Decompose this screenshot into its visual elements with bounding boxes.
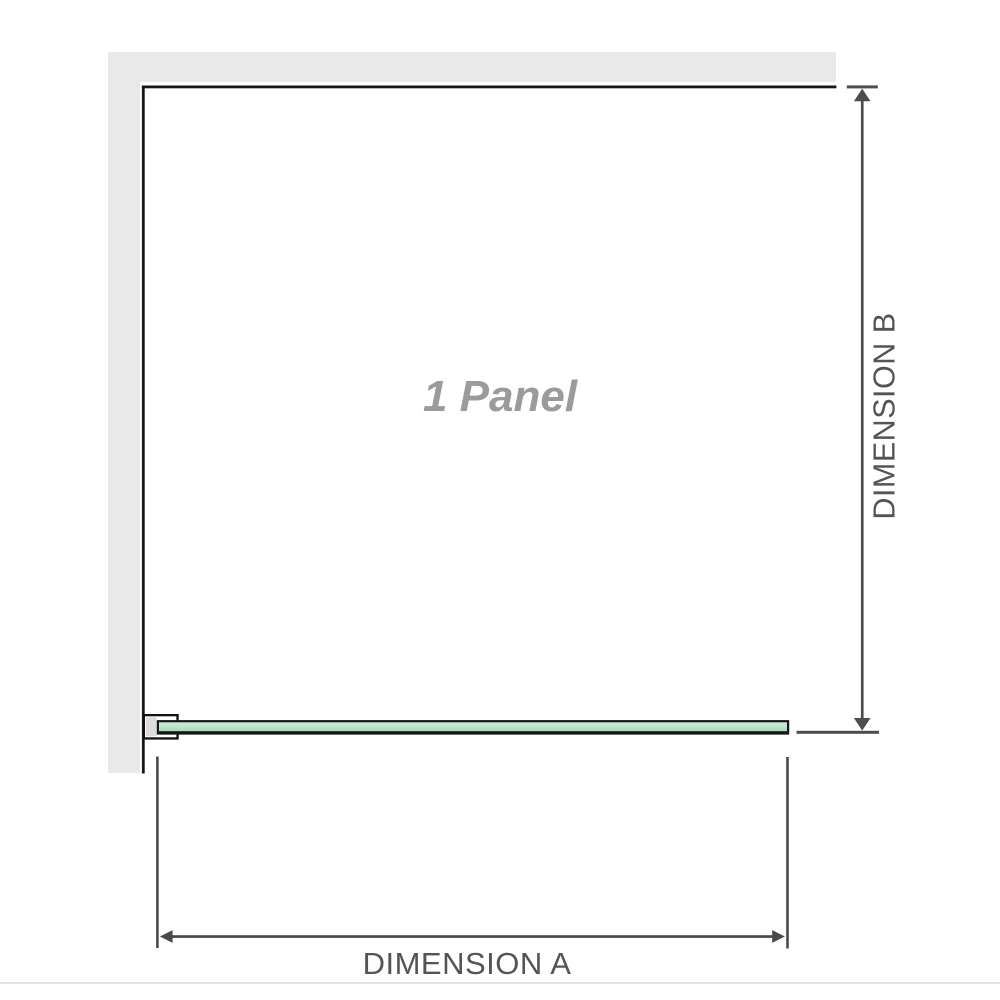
svg-text:1 Panel: 1 Panel: [423, 372, 578, 421]
svg-text:DIMENSION A: DIMENSION A: [363, 946, 572, 981]
svg-text:DIMENSION B: DIMENSION B: [868, 312, 902, 519]
